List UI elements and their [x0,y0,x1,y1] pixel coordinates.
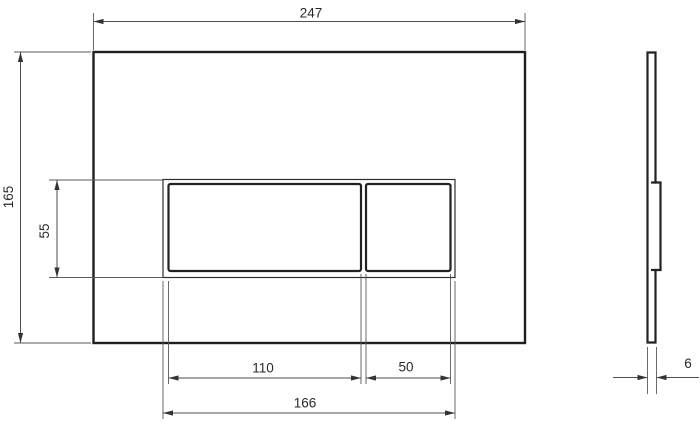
arrow-left [94,19,104,24]
dim-plate-thickness: 6 [613,347,699,394]
dimension-label: 6 [684,356,692,371]
arrow-top [54,180,59,190]
small-flush-button [366,184,451,271]
drawing-canvas: 247 165 55 110 50 [0,0,700,422]
side-profile-outline [648,53,661,343]
side-view [648,53,661,343]
dim-plate-height: 165 [1,52,91,343]
dimension-label: 50 [398,360,413,375]
arrow-right [351,375,361,380]
dimension-label: 247 [300,6,323,21]
arrow-right [441,375,451,380]
button-panel-frame [163,180,455,278]
dimension-label: 165 [1,186,16,209]
dim-button-panel-width: 166 [163,281,455,419]
arrow-right [515,19,525,24]
arrow-right [657,375,667,380]
dim-plate-width: 247 [94,6,526,51]
technical-drawing: 247 165 55 110 50 [0,0,700,422]
arrow-top [18,52,23,62]
arrow-left [163,410,173,415]
arrow-left [169,375,179,380]
dimension-label: 55 [37,223,52,238]
arrow-left [366,375,376,380]
dim-small-button-width: 50 [366,274,451,384]
dimension-label: 166 [294,396,317,411]
arrow-left [638,375,648,380]
arrow-right [445,410,455,415]
front-view [94,52,526,343]
dimension-label: 110 [252,361,274,376]
dim-button-panel-height: 55 [37,180,163,278]
dim-large-button-width: 110 [169,274,362,384]
large-flush-button [169,184,362,271]
plate-outline [94,52,526,343]
arrow-bottom [54,268,59,278]
arrow-bottom [18,333,23,343]
